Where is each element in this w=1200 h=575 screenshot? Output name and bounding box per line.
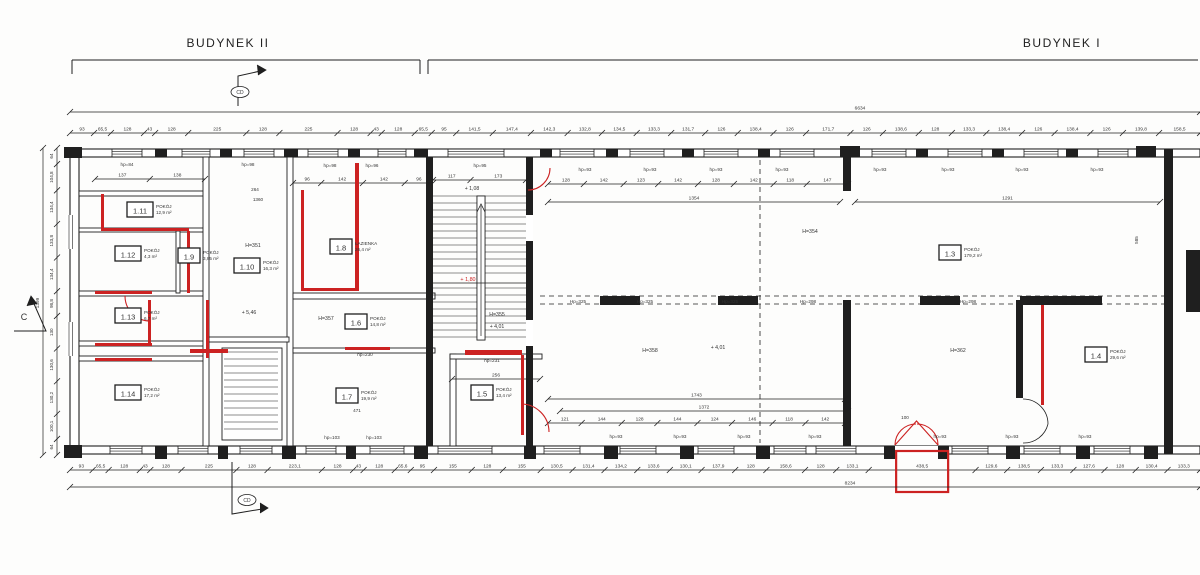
room-area-1.7: 19,9 m² bbox=[361, 396, 377, 401]
annotation-text: hp=93 bbox=[1016, 167, 1029, 172]
wall-pier bbox=[155, 446, 167, 459]
dim-value: 131,7 bbox=[682, 127, 694, 133]
dim-value: 100,1 bbox=[49, 420, 54, 432]
dim-value: 104,8 bbox=[49, 171, 54, 183]
annotation-text: hp=93 bbox=[1091, 167, 1104, 172]
dim-value: 142 bbox=[750, 178, 758, 184]
interior-wall bbox=[79, 191, 206, 196]
window bbox=[1098, 150, 1128, 157]
window bbox=[630, 150, 664, 157]
dim-value: 146 bbox=[748, 417, 756, 423]
section-marker-arrow bbox=[257, 65, 266, 75]
window bbox=[704, 150, 738, 157]
interior-wall-solid bbox=[526, 157, 533, 446]
dim-value: 225 bbox=[205, 464, 213, 470]
annotation-text: hp=95 bbox=[474, 163, 487, 168]
room-name-1.3: POKÓJ bbox=[964, 246, 980, 252]
window bbox=[306, 447, 336, 454]
dim-value: 43 bbox=[373, 127, 379, 133]
dim-value: 129,6 bbox=[985, 464, 997, 470]
annotation-text: hp=93 bbox=[809, 434, 822, 439]
dim-value: 133,3 bbox=[1051, 464, 1063, 470]
interior-wall-solid bbox=[426, 157, 433, 446]
dim-value: 130,4 bbox=[1146, 464, 1158, 470]
dim-value: 147 bbox=[823, 178, 831, 184]
room-area-1.14: 17,2 m² bbox=[144, 393, 160, 398]
dim-value: 128 bbox=[636, 417, 644, 423]
dim-value: 96 bbox=[304, 177, 310, 183]
dim-value: 128 bbox=[712, 178, 720, 184]
annotation-text: H=354 bbox=[802, 229, 818, 235]
annotation-text: Hp=325 bbox=[637, 299, 654, 304]
dim-value: 128 bbox=[931, 127, 939, 133]
renovation-door-arc-red bbox=[521, 404, 549, 432]
dim-value: 133,3 bbox=[648, 127, 660, 133]
wall-pier bbox=[1136, 146, 1156, 157]
dim-value: 133,3 bbox=[963, 127, 975, 133]
annotation-text: H=351 bbox=[245, 243, 261, 249]
dim-value: 223,1 bbox=[289, 464, 301, 470]
dim-value: 1743 bbox=[691, 393, 702, 399]
dim-value: 128 bbox=[350, 127, 358, 133]
dim-value: 155 bbox=[449, 464, 457, 470]
room-number-1.14: 1.14 bbox=[121, 390, 136, 399]
overall-dim-value: 8234 bbox=[845, 481, 856, 487]
window bbox=[182, 150, 210, 157]
annotation-text: hp=231 bbox=[484, 358, 500, 363]
room-area-1.10: 16,3 m² bbox=[263, 266, 279, 271]
wall-pier bbox=[540, 149, 552, 157]
annotation-text: + 1,80 bbox=[460, 277, 475, 283]
wall-pier bbox=[1066, 149, 1078, 157]
room-number-1.5: 1.5 bbox=[477, 390, 487, 399]
wall-pier bbox=[1144, 446, 1158, 459]
door-opening bbox=[526, 320, 533, 346]
dim-value: 155 bbox=[518, 464, 526, 470]
renovation-wall-red bbox=[1041, 305, 1044, 405]
room-number-1.10: 1.10 bbox=[240, 263, 255, 272]
dim-value: 126 bbox=[717, 127, 725, 133]
window bbox=[948, 150, 982, 157]
dim-value: 134,2 bbox=[615, 464, 627, 470]
dim-value: 131,4 bbox=[583, 464, 595, 470]
door-opening bbox=[288, 250, 292, 272]
room-area-1.6: 14,8 m² bbox=[370, 322, 386, 327]
annotation-text: hp=103 bbox=[324, 435, 340, 440]
dim-value: 65,6 bbox=[398, 464, 408, 470]
dim-value: 64 bbox=[49, 444, 54, 450]
window bbox=[1024, 447, 1060, 454]
annotation-text: hp=93 bbox=[942, 167, 955, 172]
room-name-1.6: POKÓJ bbox=[370, 315, 386, 321]
dim-value: 130 bbox=[49, 328, 54, 336]
annotation-text: hp=93 bbox=[738, 434, 751, 439]
annotation-text: 1360 bbox=[253, 197, 264, 202]
annotation-text: + 4,01 bbox=[490, 324, 505, 330]
window bbox=[698, 447, 734, 454]
building-title-1: BUDYNEK II bbox=[186, 36, 269, 50]
dim-value: 225 bbox=[304, 127, 312, 133]
annotation-text: hp=93 bbox=[1079, 434, 1092, 439]
dim-value: 147,4 bbox=[506, 127, 518, 133]
dim-value: 158,6 bbox=[780, 464, 792, 470]
dim-value: 128 bbox=[562, 178, 570, 184]
window bbox=[448, 150, 504, 157]
room-area-1.12: 4,3 m² bbox=[144, 254, 157, 259]
dim-value: 133,6 bbox=[648, 464, 660, 470]
dim-value: 171,7 bbox=[822, 127, 834, 133]
annotation-text: hp=96 bbox=[366, 163, 379, 168]
dim-value: 43 bbox=[147, 127, 153, 133]
room-name-1.11: POKÓJ bbox=[156, 203, 172, 209]
wall-pier bbox=[758, 149, 770, 157]
dim-value: 126 bbox=[863, 127, 871, 133]
dim-value: 144 bbox=[598, 417, 606, 423]
dim-value: 121 bbox=[561, 417, 569, 423]
room-area-1.13: 6,7 m² bbox=[144, 316, 157, 321]
annotation-text: hp=98 bbox=[324, 163, 337, 168]
window bbox=[780, 150, 814, 157]
interior-wall-solid bbox=[1016, 300, 1023, 398]
room-name-1.12: POKÓJ bbox=[144, 247, 160, 253]
door-opening bbox=[288, 380, 292, 402]
renovation-wall-red bbox=[95, 343, 152, 346]
overall-dim-value: 6634 bbox=[855, 106, 866, 112]
dim-value: 132,8 bbox=[579, 127, 591, 133]
dim-value: 133,8 bbox=[49, 235, 54, 247]
annotation-text: 585 bbox=[1134, 236, 1139, 244]
room-number-1.3: 1.3 bbox=[945, 250, 955, 259]
annotation-text: + 5,46 bbox=[242, 310, 257, 316]
wall-pier bbox=[155, 149, 167, 157]
room-number-1.9: 1.9 bbox=[184, 253, 194, 262]
dim-value: 134,4 bbox=[49, 268, 54, 280]
annotation-text: hp=93 bbox=[610, 434, 623, 439]
window bbox=[240, 447, 272, 454]
window bbox=[620, 447, 656, 454]
room-number-1.13: 1.13 bbox=[121, 313, 136, 322]
dim-value: 1372 bbox=[699, 405, 710, 411]
dim-value: 118 bbox=[785, 417, 793, 423]
room-number-1.4: 1.4 bbox=[1091, 352, 1101, 361]
dim-value: 256 bbox=[492, 373, 500, 379]
section-marker-label: CD bbox=[236, 90, 244, 96]
dim-value: 138,5 bbox=[1018, 464, 1030, 470]
wall-pier bbox=[414, 149, 428, 157]
room-name-1.7: POKÓJ bbox=[361, 389, 377, 395]
room-area-1.8: 26,4 m² bbox=[355, 247, 371, 252]
dim-value: 1354 bbox=[689, 196, 700, 202]
dim-value: 137,9 bbox=[712, 464, 724, 470]
window bbox=[66, 322, 78, 356]
wall-pier bbox=[916, 149, 928, 157]
annotation-text: H=357 bbox=[318, 316, 334, 322]
annotation-text: 264 bbox=[251, 187, 259, 192]
dim-value: 138 bbox=[173, 173, 181, 179]
dim-value: 126 bbox=[786, 127, 794, 133]
dim-value: 128 bbox=[162, 464, 170, 470]
dim-value: 64 bbox=[49, 153, 54, 159]
door-opening bbox=[526, 215, 533, 241]
dim-value: 96 bbox=[416, 177, 422, 183]
wall-pier bbox=[524, 446, 536, 459]
dim-value: 128 bbox=[394, 127, 402, 133]
wall-pier bbox=[220, 149, 232, 157]
window bbox=[774, 447, 806, 454]
window bbox=[544, 447, 580, 454]
dim-value: 43 bbox=[356, 464, 362, 470]
renovation-wall-red bbox=[521, 355, 524, 435]
dim-value: 128 bbox=[817, 464, 825, 470]
dim-value: 65,5 bbox=[96, 464, 106, 470]
window bbox=[816, 447, 856, 454]
dim-value: 138,6 bbox=[895, 127, 907, 133]
renovation-wall-red bbox=[95, 291, 152, 294]
window bbox=[952, 447, 988, 454]
wall-pier bbox=[606, 149, 618, 157]
dim-value: 65,5 bbox=[98, 127, 108, 133]
dim-value: 95 bbox=[441, 127, 447, 133]
window bbox=[110, 447, 142, 454]
dim-value: 142 bbox=[600, 178, 608, 184]
wall-pier bbox=[1006, 446, 1020, 459]
dim-value: 144 bbox=[673, 417, 681, 423]
dim-value: 128 bbox=[483, 464, 491, 470]
room-area-1.5: 13,4 m² bbox=[496, 393, 512, 398]
dim-value: 225 bbox=[213, 127, 221, 133]
building-title-2: BUDYNEK I bbox=[1023, 36, 1101, 50]
annotation-text: hp=98 bbox=[242, 162, 255, 167]
dim-value: 158,5 bbox=[1174, 127, 1186, 133]
door-swing-arc bbox=[1023, 399, 1048, 424]
annotation-text: H=358 bbox=[642, 348, 658, 354]
window bbox=[378, 150, 406, 157]
dim-value: 173 bbox=[494, 174, 502, 180]
wall-pier bbox=[218, 446, 228, 459]
dim-value: 133,3 bbox=[1178, 464, 1190, 470]
dim-value: 128 bbox=[120, 464, 128, 470]
dim-value: 128 bbox=[334, 464, 342, 470]
dim-value: 138,4 bbox=[1066, 127, 1078, 133]
dim-value: 134,5 bbox=[613, 127, 625, 133]
room-area-1.11: 12,9 m² bbox=[156, 210, 172, 215]
renovation-double-door-red bbox=[895, 421, 938, 445]
renovation-wall-red bbox=[355, 163, 359, 291]
window bbox=[560, 150, 594, 157]
dim-value: 117 bbox=[448, 174, 456, 180]
wall-pier bbox=[680, 446, 694, 459]
annotation-text: hp=93 bbox=[776, 167, 789, 172]
dim-value: 130,2 bbox=[49, 391, 54, 403]
annotation-text: H=355 bbox=[489, 312, 505, 318]
dim-value: 126 bbox=[1034, 127, 1042, 133]
section-marker-arrow bbox=[260, 503, 268, 513]
annotation-text: hp=93 bbox=[934, 434, 947, 439]
room-name-1.13: POKÓJ bbox=[144, 309, 160, 315]
dim-value: 1291 bbox=[1002, 196, 1013, 202]
door-opening bbox=[204, 396, 208, 418]
room-name-1.10: POKÓJ bbox=[263, 259, 279, 265]
door-opening bbox=[204, 262, 208, 284]
dim-value: 123 bbox=[637, 178, 645, 184]
annotation-text: hp=103 bbox=[366, 435, 382, 440]
interior-wall-solid bbox=[1186, 250, 1200, 312]
floor-plan-canvas: 9365,5128431282251282251284312865,595141… bbox=[0, 0, 1200, 575]
wall-pier bbox=[992, 149, 1004, 157]
dim-value: 43 bbox=[142, 464, 148, 470]
renovation-wall-red bbox=[345, 347, 390, 350]
window bbox=[872, 150, 906, 157]
dim-value: 139,8 bbox=[1135, 127, 1147, 133]
wall-pier bbox=[284, 149, 298, 157]
dim-value: 127,6 bbox=[1083, 464, 1095, 470]
wall-pier bbox=[282, 446, 296, 459]
wall-pier bbox=[64, 147, 82, 158]
dim-value: 130,1 bbox=[680, 464, 692, 470]
dim-value: 124 bbox=[711, 417, 719, 423]
annotation-text: hp=230 bbox=[357, 352, 373, 357]
dim-value: 118 bbox=[786, 178, 794, 184]
section-marker-label: C bbox=[21, 312, 28, 322]
dim-value: 128 bbox=[375, 464, 383, 470]
annotation-text: Hp=325 bbox=[570, 299, 587, 304]
dim-value: 128 bbox=[747, 464, 755, 470]
dim-value: 142 bbox=[821, 417, 829, 423]
room-area-1.4: 29,6 m² bbox=[1110, 355, 1126, 360]
window bbox=[438, 447, 492, 454]
wall-pier bbox=[604, 446, 618, 459]
annotation-text: Hp=325 bbox=[722, 299, 739, 304]
window bbox=[244, 150, 274, 157]
room-name-1.14: POKÓJ bbox=[144, 386, 160, 392]
renovation-wall-red bbox=[465, 350, 522, 355]
room-name-1.4: POKÓJ bbox=[1110, 348, 1126, 354]
dim-value: 130,6 bbox=[49, 359, 54, 371]
dim-value: 142,3 bbox=[543, 127, 555, 133]
room-number-1.7: 1.7 bbox=[342, 393, 352, 402]
dim-value: 130,5 bbox=[551, 464, 563, 470]
window bbox=[112, 150, 142, 157]
dim-value: 134,4 bbox=[49, 201, 54, 213]
renovation-wall-red bbox=[190, 349, 228, 353]
annotation-text: hp=93 bbox=[1006, 434, 1019, 439]
room-area-1.3: 179,2 m² bbox=[964, 253, 983, 258]
interior-wall bbox=[293, 293, 435, 299]
wall-pier bbox=[1076, 446, 1090, 459]
annotation-text: hp=93 bbox=[579, 167, 592, 172]
annotation-text: 471 bbox=[353, 408, 361, 413]
room-number-1.8: 1.8 bbox=[336, 244, 346, 253]
dim-value: 95 bbox=[420, 464, 426, 470]
wall-pier bbox=[840, 146, 860, 157]
renovation-wall-red bbox=[101, 194, 104, 230]
window bbox=[66, 215, 78, 249]
window bbox=[308, 150, 338, 157]
annotation-text: 100 bbox=[901, 415, 909, 420]
floor-plan-svg: 9365,5128431282251282251284312865,595141… bbox=[0, 0, 1200, 575]
dim-value: 142 bbox=[338, 177, 346, 183]
annotation-text: hp=93 bbox=[874, 167, 887, 172]
window bbox=[1024, 150, 1058, 157]
dim-value: 128 bbox=[248, 464, 256, 470]
wall-pier bbox=[884, 446, 895, 459]
dim-value: 142 bbox=[674, 178, 682, 184]
annotation-text: + 1,08 bbox=[465, 186, 480, 192]
annotation-text: Hp=298 bbox=[800, 299, 817, 304]
dim-value: 438,5 bbox=[916, 464, 928, 470]
dim-value: 93 bbox=[79, 127, 85, 133]
dim-value: 133,1 bbox=[846, 464, 858, 470]
room-name-1.9: POKÓJ bbox=[203, 249, 219, 255]
dim-value: 65,5 bbox=[419, 127, 429, 133]
interior-wall bbox=[209, 337, 289, 342]
annotation-text: hp=93 bbox=[710, 167, 723, 172]
dim-value: 138,4 bbox=[750, 127, 762, 133]
dim-value: 128 bbox=[123, 127, 131, 133]
room-number-1.11: 1.11 bbox=[133, 207, 147, 216]
annotation-text: hp=93 bbox=[644, 167, 657, 172]
annotation-text: Hp=298 bbox=[960, 299, 977, 304]
renovation-wall-red bbox=[301, 190, 304, 290]
wall-pier bbox=[64, 445, 82, 458]
renovation-wall-red bbox=[301, 288, 359, 291]
dim-value: 128 bbox=[259, 127, 267, 133]
room-number-1.12: 1.12 bbox=[121, 251, 136, 260]
interior-wall-solid bbox=[843, 157, 851, 191]
interior-wall bbox=[450, 354, 456, 446]
wall-pier bbox=[346, 446, 356, 459]
annotation-text: H=362 bbox=[950, 348, 966, 354]
dim-value: 128 bbox=[1116, 464, 1124, 470]
dim-value: 141,5 bbox=[469, 127, 481, 133]
wall-pier bbox=[756, 446, 770, 459]
outer-wall bbox=[70, 149, 79, 454]
wall-pier bbox=[414, 446, 428, 459]
dim-value: 128 bbox=[168, 127, 176, 133]
room-area-1.9: 3,85 m² bbox=[203, 256, 219, 261]
room-number-1.6: 1.6 bbox=[351, 319, 361, 328]
dim-value: 137 bbox=[118, 173, 126, 179]
interior-wall bbox=[287, 157, 293, 446]
dim-value: 138,4 bbox=[998, 127, 1010, 133]
window bbox=[178, 447, 208, 454]
renovation-wall-red bbox=[95, 358, 152, 361]
wall-pier bbox=[682, 149, 694, 157]
dim-value: 93 bbox=[79, 464, 85, 470]
section-marker-label: CD bbox=[243, 498, 251, 504]
interior-wall-solid bbox=[1164, 149, 1173, 454]
window bbox=[370, 447, 404, 454]
door-swing-arc bbox=[1023, 424, 1048, 443]
renovation-wall-red bbox=[101, 228, 189, 231]
room-name-1.8: ŁAZIENKA bbox=[355, 241, 378, 246]
wall-pier bbox=[348, 149, 360, 157]
dim-value: 142 bbox=[380, 177, 388, 183]
annotation-text: hp=84 bbox=[121, 162, 134, 167]
annotation-text: + 4,01 bbox=[711, 345, 726, 351]
annotation-text: hp=93 bbox=[674, 434, 687, 439]
dim-value: 126 bbox=[1103, 127, 1111, 133]
window bbox=[1094, 447, 1130, 454]
dim-value: 98,8 bbox=[49, 299, 54, 308]
room-name-1.5: POKÓJ bbox=[496, 386, 512, 392]
